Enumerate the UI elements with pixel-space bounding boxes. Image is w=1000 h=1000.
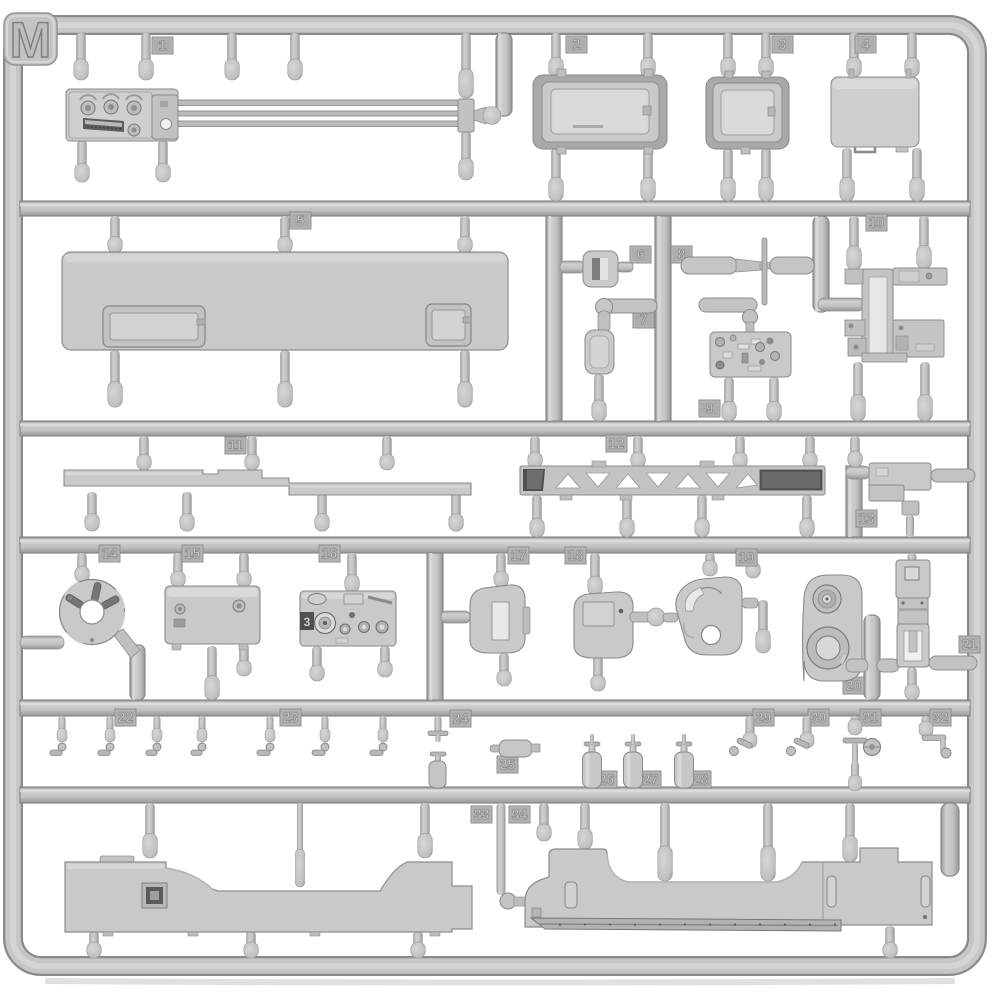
- svg-text:12: 12: [609, 435, 625, 451]
- svg-text:13: 13: [859, 510, 875, 526]
- svg-text:25: 25: [500, 756, 516, 772]
- svg-text:18: 18: [568, 547, 584, 563]
- svg-text:9: 9: [706, 400, 714, 416]
- svg-text:17: 17: [511, 547, 527, 563]
- svg-text:4: 4: [862, 36, 870, 52]
- svg-text:M: M: [10, 12, 52, 68]
- svg-text:14: 14: [102, 545, 118, 561]
- svg-text:24: 24: [453, 710, 469, 726]
- svg-text:1: 1: [159, 37, 167, 53]
- svg-text:16: 16: [322, 545, 338, 561]
- svg-text:2: 2: [573, 36, 581, 52]
- svg-text:3: 3: [304, 615, 311, 629]
- svg-text:31: 31: [863, 709, 879, 725]
- svg-text:34: 34: [512, 806, 528, 822]
- svg-text:19: 19: [739, 549, 755, 565]
- svg-text:29: 29: [756, 709, 772, 725]
- svg-text:3: 3: [779, 36, 787, 52]
- svg-text:6: 6: [637, 246, 645, 262]
- svg-text:32: 32: [933, 709, 949, 725]
- svg-text:22: 22: [118, 709, 134, 725]
- svg-text:23: 23: [283, 709, 299, 725]
- svg-text:15: 15: [185, 545, 201, 561]
- svg-text:33: 33: [474, 806, 490, 822]
- svg-text:5: 5: [297, 212, 305, 228]
- svg-text:11: 11: [228, 437, 243, 453]
- svg-text:28: 28: [693, 771, 709, 787]
- svg-text:10: 10: [869, 214, 885, 230]
- svg-text:21: 21: [962, 636, 978, 652]
- svg-text:27: 27: [643, 771, 659, 787]
- svg-text:30: 30: [811, 709, 827, 725]
